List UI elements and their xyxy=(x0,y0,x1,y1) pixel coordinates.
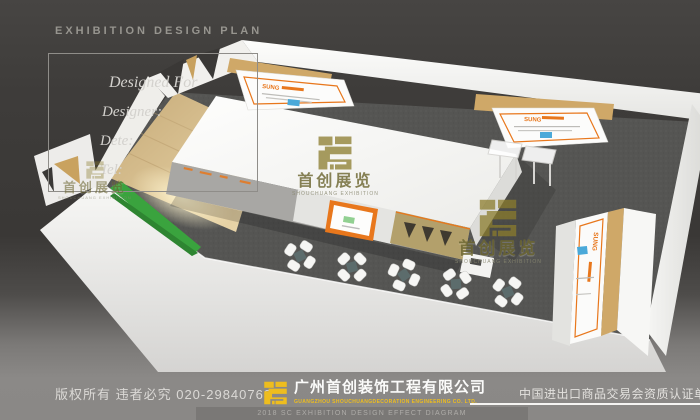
diagram-label-strip: 2018 SC EXHIBITION DESIGN EFFECT DIAGRAM xyxy=(196,407,528,420)
design-board: SUNG SUNG xyxy=(0,0,700,420)
certification-text: 中国进出口商品交易会资质认证单位 xyxy=(519,385,700,402)
info-box: Designed For Designer: Dete: Tel: xyxy=(48,53,258,192)
designed-for-label: Designed For xyxy=(109,74,197,92)
company-name-en: GUANGZHOU SHOUCHUANGDECORATION ENGINEERI… xyxy=(294,399,486,405)
company-name-cn: 广州首创装饰工程有限公司 xyxy=(294,380,486,397)
copyright-text: 版权所有 违者必究 020-29840768 xyxy=(55,384,272,403)
company-block: 广州首创装饰工程有限公司 GUANGZHOU SHOUCHUANGDECORAT… xyxy=(262,380,486,406)
panel-photo-chip xyxy=(287,99,300,106)
right-pillar: SUNG xyxy=(552,208,656,356)
tel-label: Tel: xyxy=(100,162,123,179)
designer-label: Designer: xyxy=(102,104,162,121)
page-title: EXHIBITION DESIGN PLAN xyxy=(55,25,262,37)
diagram-label: 2018 SC EXHIBITION DESIGN EFFECT DIAGRAM xyxy=(257,410,466,417)
panel-photo-chip xyxy=(540,132,552,138)
panel-photo-chip xyxy=(577,246,588,255)
footer-divider-line xyxy=(470,403,700,405)
panel-brand-text: SUNG xyxy=(524,117,542,124)
date-label: Dete: xyxy=(100,133,133,150)
sc-logo-icon xyxy=(262,380,289,406)
